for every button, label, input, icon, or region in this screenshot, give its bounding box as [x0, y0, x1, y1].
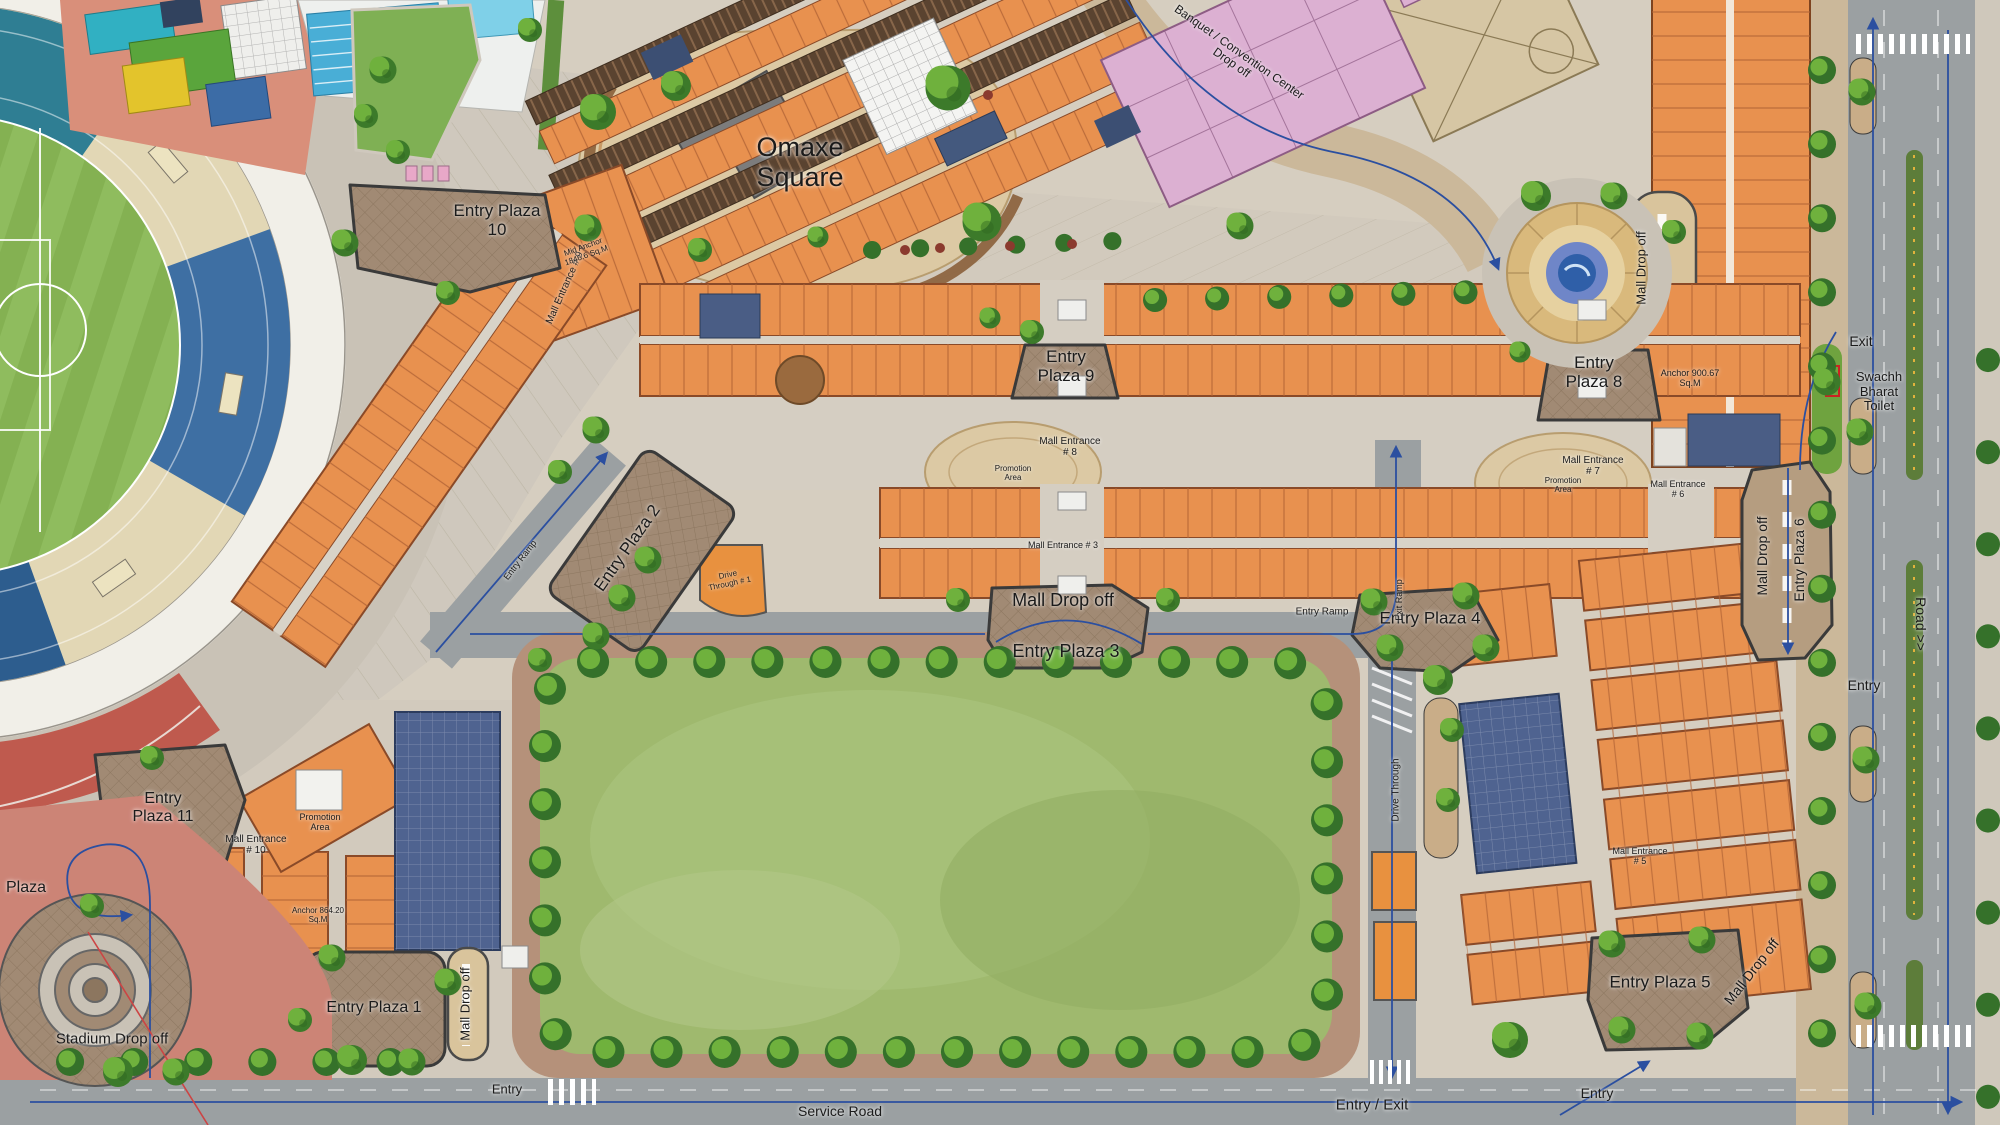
fountain-plaza	[1482, 178, 1672, 368]
central-park	[512, 632, 1360, 1078]
promotion-structure	[296, 770, 342, 810]
site-plan-drawing	[0, 0, 2000, 1125]
wood-deck-circle	[776, 356, 824, 404]
drive-through-1-kiosk	[700, 545, 766, 616]
site-plan-canvas: Omaxe Square Entry Plaza 10 Entry Plaza …	[0, 0, 2000, 1125]
fountain-water	[1558, 254, 1596, 292]
drive-through-kiosk-2	[1374, 922, 1416, 1000]
spiral-fountain	[83, 978, 107, 1002]
drive-through-kiosk-1	[1372, 852, 1416, 910]
